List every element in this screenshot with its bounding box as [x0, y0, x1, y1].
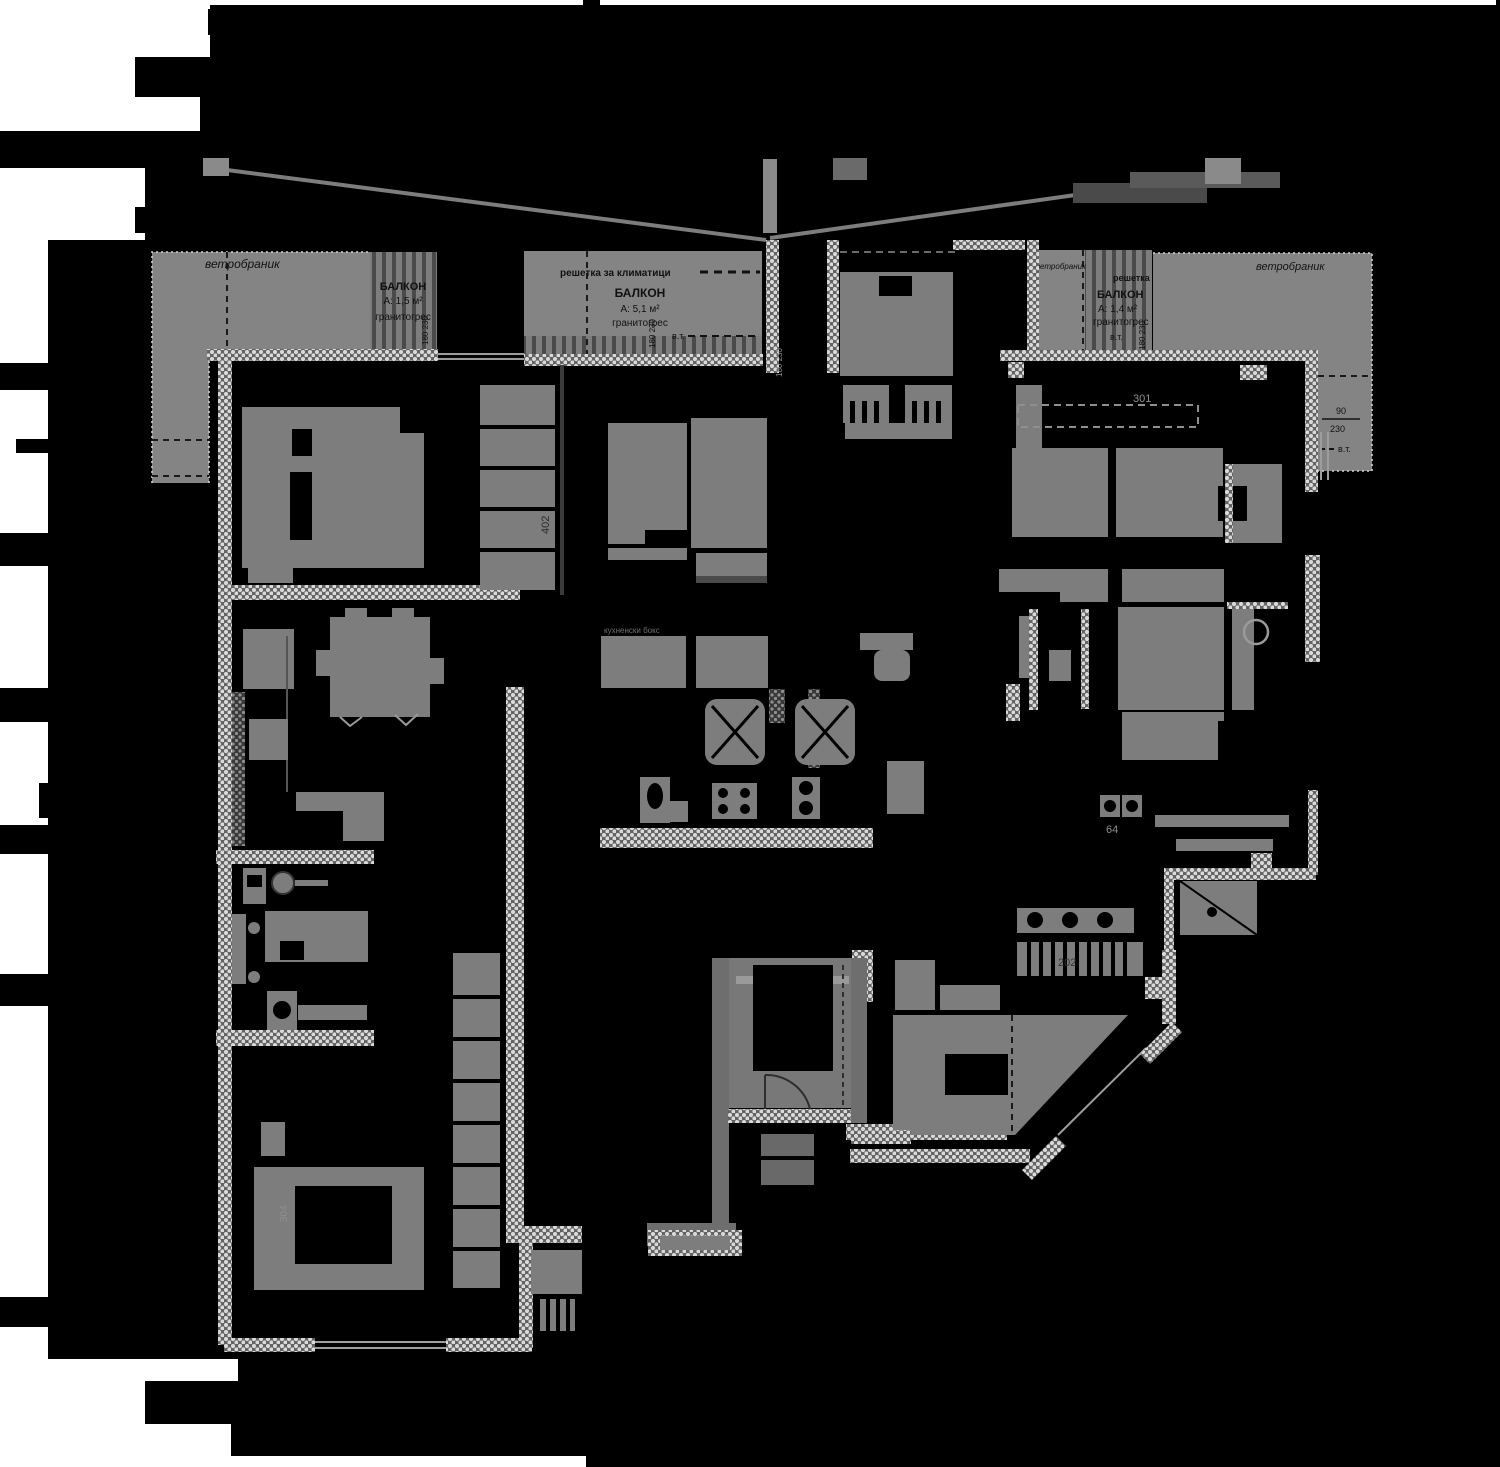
svg-text:301: 301 — [1133, 393, 1151, 405]
svg-text:в.т.: в.т. — [672, 331, 685, 341]
svg-text:гранитогрес: гранитогрес — [612, 318, 668, 329]
svg-text:180 230: 180 230 — [1138, 321, 1147, 350]
svg-text:180 230: 180 230 — [648, 319, 657, 348]
svg-text:ветробраник: ветробраник — [205, 257, 281, 271]
svg-text:А: 5,1 м²: А: 5,1 м² — [620, 304, 660, 315]
svg-text:64: 64 — [1106, 824, 1118, 836]
svg-text:202: 202 — [1058, 957, 1076, 969]
svg-text:180 230: 180 230 — [775, 348, 784, 377]
svg-text:в.т.: в.т. — [1110, 332, 1123, 342]
svg-text:БАЛКОН: БАЛКОН — [1097, 289, 1144, 301]
svg-text:230: 230 — [1330, 424, 1345, 434]
svg-text:БАЛКОН: БАЛКОН — [615, 286, 666, 300]
svg-text:решетка за климатици: решетка за климатици — [560, 268, 671, 279]
svg-text:402: 402 — [540, 516, 552, 534]
svg-text:А: 1,5 м²: А: 1,5 м² — [383, 296, 423, 307]
svg-text:А: 1,4 м²: А: 1,4 м² — [1098, 304, 1138, 315]
svg-text:304: 304 — [279, 1205, 290, 1222]
svg-text:БАЛКОН: БАЛКОН — [380, 281, 427, 293]
svg-text:180 230: 180 230 — [421, 316, 430, 345]
svg-text:90: 90 — [1336, 406, 1346, 416]
svg-text:кухненски бокс: кухненски бокс — [604, 626, 660, 635]
svg-text:ветробраник: ветробраник — [1256, 261, 1325, 273]
svg-text:ветробраник: ветробраник — [1036, 262, 1087, 271]
svg-text:в.т.: в.т. — [1338, 444, 1351, 454]
